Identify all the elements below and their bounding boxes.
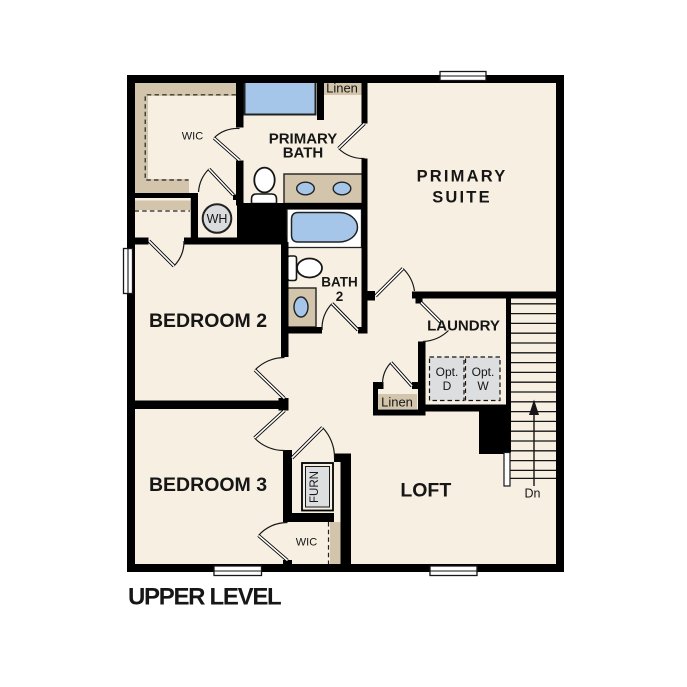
svg-text:BEDROOM 2: BEDROOM 2 xyxy=(149,310,267,332)
svg-text:WIC: WIC xyxy=(296,536,317,548)
svg-text:Opt.: Opt. xyxy=(472,365,495,379)
svg-text:WIC: WIC xyxy=(182,131,203,143)
svg-text:LOFT: LOFT xyxy=(400,480,451,502)
svg-text:Linen: Linen xyxy=(381,395,413,410)
svg-text:D: D xyxy=(443,379,452,393)
svg-text:BEDROOM 3: BEDROOM 3 xyxy=(149,474,267,496)
svg-text:WH: WH xyxy=(207,212,228,226)
svg-text:BATH: BATH xyxy=(283,144,324,161)
svg-text:SUITE: SUITE xyxy=(432,189,492,207)
svg-text:W: W xyxy=(477,379,489,393)
svg-text:PRIMARY: PRIMARY xyxy=(417,168,508,186)
svg-text:2: 2 xyxy=(336,289,344,304)
svg-text:Dn: Dn xyxy=(525,487,541,501)
svg-text:LAUNDRY: LAUNDRY xyxy=(427,318,500,335)
svg-text:BATH: BATH xyxy=(321,274,358,289)
svg-text:UPPER LEVEL: UPPER LEVEL xyxy=(128,584,281,611)
svg-text:FURN: FURN xyxy=(309,471,321,503)
svg-text:Opt.: Opt. xyxy=(436,365,459,379)
